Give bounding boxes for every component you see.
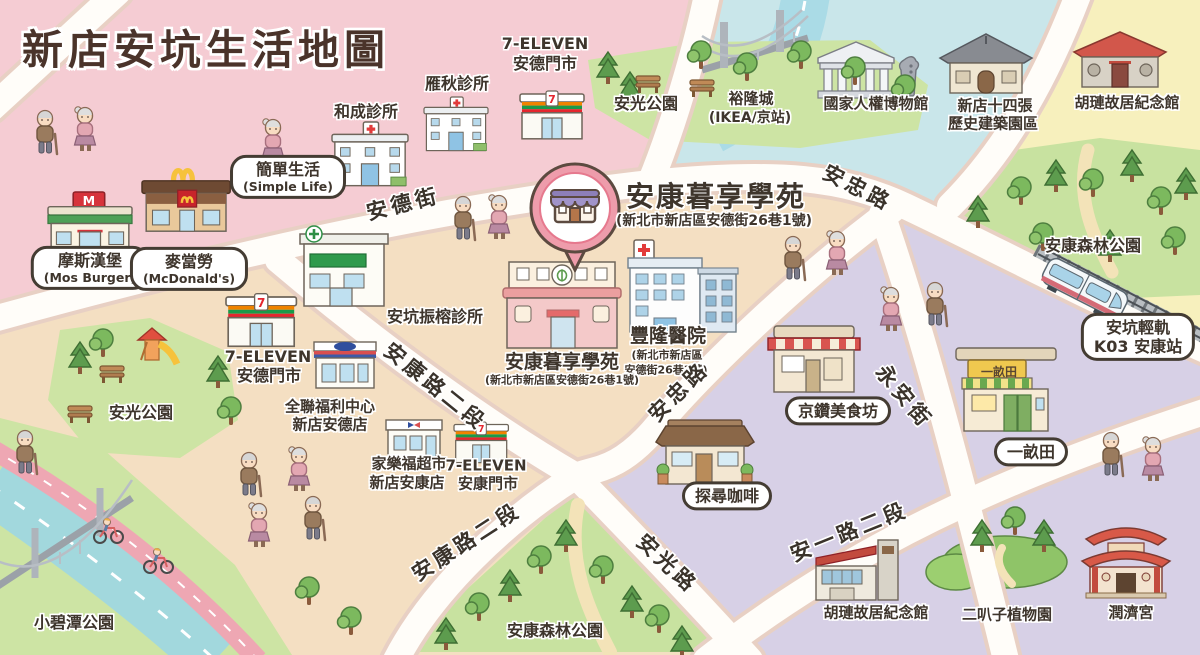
label-yanqiu-clinic: 雁秋診所	[425, 75, 489, 93]
bubble-yimutian: 一畝田	[994, 437, 1068, 466]
mos-zh: 摩斯漢堡	[44, 251, 136, 270]
ankang-academy-building	[503, 262, 621, 348]
mcd-en: (McDonald's)	[143, 271, 235, 286]
bubble-simple-life: 簡單生活 (Simple Life)	[230, 155, 346, 199]
label-seven-ankang-brand: 7-ELEVEN	[445, 457, 526, 474]
lightrail-line2: K03 安康站	[1094, 337, 1182, 356]
label-seven-ande-mid-store: 安德門市	[237, 367, 301, 385]
map-title: 新店安坑生活地圖	[22, 16, 390, 76]
lightrail-line1: 安坑輕軌	[1094, 318, 1182, 337]
seven-eleven-ande-top-building	[520, 91, 584, 139]
label-hulian-memorial-bottom: 胡璉故居紀念館	[823, 604, 928, 621]
label-carrefour-line2: 新店安康店	[369, 474, 444, 491]
label-seven-ande-top-store: 安德門市	[513, 55, 577, 73]
label-seven-ankang-store: 安康門市	[458, 475, 518, 492]
bubble-jingzuan: 京鑽美食坊	[785, 396, 891, 425]
label-human-rights-museum: 國家人權博物館	[823, 95, 928, 112]
label-highlight-name: 安康暮享學苑	[626, 181, 806, 213]
tanxun-cafe-building	[656, 420, 754, 484]
label-runji-temple: 潤濟宮	[1108, 604, 1153, 621]
label-ankeng-clinic: 安坑振榕診所	[387, 308, 483, 326]
pxmart-building	[314, 342, 376, 388]
label-anguang-park-left: 安光公園	[109, 404, 173, 422]
label-forest-park-right: 安康森林公園	[1045, 237, 1141, 255]
label-shisizhang-line1: 新店十四張	[957, 97, 1032, 114]
jingzuan-eatery-building	[768, 326, 860, 392]
label-academy-sub-name: 安康暮享學苑	[505, 352, 619, 374]
label-yulon-city: 裕隆城	[728, 90, 773, 107]
label-shisizhang-line2: 歷史建築園區	[948, 115, 1038, 132]
label-yulon-city-en: (IKEA/京站)	[709, 110, 791, 126]
label-seven-ande-top-brand: 7-ELEVEN	[502, 35, 589, 53]
label-forest-park-bottom: 安康森林公園	[507, 622, 603, 640]
seven-eleven-ande-mid-building	[226, 294, 296, 347]
ankeng-clinic-building	[300, 226, 388, 306]
label-pxmart-line1: 全聯福利中心	[285, 398, 375, 415]
label-seven-ande-mid-brand: 7-ELEVEN	[225, 348, 312, 366]
bubble-light-rail: 安坑輕軌 K03 安康站	[1081, 313, 1195, 361]
bubble-mcdonalds: 麥當勞 (McDonald's)	[130, 247, 248, 291]
yimutian-sign-text: 一畝田	[981, 364, 1017, 379]
label-anguang-park-top: 安光公園	[614, 95, 678, 113]
label-hecheng-clinic: 和成診所	[334, 103, 398, 121]
label-hulian-memorial-top: 胡璉故居紀念館	[1074, 94, 1179, 111]
mos-en: (Mos Burger)	[44, 270, 136, 285]
label-pxmart-line2: 新店安德店	[292, 416, 367, 433]
bubble-tanxun-cafe: 探尋咖啡	[682, 481, 772, 510]
label-fenglong-hospital: 豐隆醫院	[630, 326, 706, 348]
yimutian-building	[956, 348, 1056, 431]
label-xiaobitan-park: 小碧潭公園	[34, 614, 114, 632]
label-academy-sub-address: (新北市新店區安德街26巷1號)	[485, 375, 639, 388]
illustrated-neighborhood-map: 7	[0, 0, 1200, 655]
label-carrefour-line1: 家樂福超市	[371, 455, 446, 472]
simple-life-zh: 簡單生活	[243, 160, 333, 179]
label-highlight-address: (新北市新店區安德街26巷1號)	[616, 213, 812, 229]
label-erbazi-garden: 二叭子植物園	[962, 606, 1052, 623]
simple-life-en: (Simple Life)	[243, 179, 333, 194]
mcd-zh: 麥當勞	[143, 252, 235, 271]
